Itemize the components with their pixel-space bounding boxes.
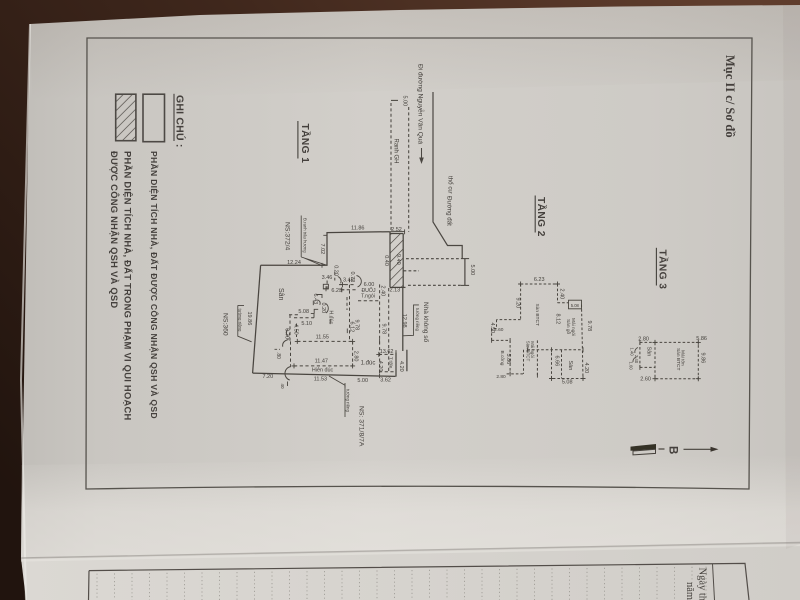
- svg-text:Hiên đúc: Hiên đúc: [312, 368, 334, 374]
- svg-text:12.98: 12.98: [401, 314, 407, 328]
- svg-text:7.20: 7.20: [262, 374, 273, 380]
- svg-text:Sàn BTCT: Sàn BTCT: [534, 304, 540, 326]
- svg-text:6.43: 6.43: [312, 294, 318, 305]
- svg-text:19.86: 19.86: [246, 312, 252, 326]
- svg-text:5.86: 5.86: [505, 354, 511, 365]
- svg-text:TẦNG 1: TẦNG 1: [299, 124, 312, 164]
- svg-text:Sàn BTCT: Sàn BTCT: [525, 341, 530, 362]
- svg-text:tường riêng: tường riêng: [346, 389, 351, 412]
- svg-text:11.86: 11.86: [351, 225, 364, 231]
- svg-text:Đường đất: Đường đất: [446, 196, 453, 226]
- svg-text:thổ cư: thổ cư: [447, 176, 454, 194]
- svg-text:Ngày th: Ngày th: [697, 568, 708, 600]
- svg-text:Đ.ranh trâu hương: Đ.ranh trâu hương: [302, 218, 307, 253]
- svg-text:GHI CHÚ :: GHI CHÚ :: [174, 95, 187, 148]
- svg-text:11.55: 11.55: [316, 335, 329, 341]
- svg-text:0.40: 0.40: [383, 255, 389, 266]
- svg-text:4.50: 4.50: [293, 324, 299, 335]
- svg-text:TẦNG 3: TẦNG 3: [657, 250, 670, 290]
- svg-text:0.72: 0.72: [349, 272, 355, 283]
- svg-text:5.08: 5.08: [298, 309, 309, 315]
- svg-text:Mái tôn: Mái tôn: [680, 350, 686, 366]
- svg-text:Mục II c/ Sơ đồ: Mục II c/ Sơ đồ: [723, 55, 737, 138]
- svg-text:4.20: 4.20: [377, 361, 383, 372]
- svg-text:5.00: 5.00: [402, 96, 408, 107]
- svg-text:2.40: 2.40: [379, 286, 385, 297]
- svg-text:Ranh GH: Ranh GH: [393, 139, 399, 164]
- svg-text:T.ngói: T.ngói: [361, 294, 375, 300]
- svg-text:5.10: 5.10: [301, 321, 312, 327]
- svg-text:tường riêng: tường riêng: [238, 309, 243, 332]
- svg-text:2.52: 2.52: [391, 227, 402, 233]
- svg-text:4.20: 4.20: [398, 361, 404, 372]
- svg-text:B: B: [667, 446, 679, 454]
- svg-text:3.46: 3.46: [322, 275, 333, 281]
- svg-text:5.00: 5.00: [357, 378, 368, 384]
- svg-text:40: 40: [280, 384, 285, 390]
- svg-text:2.13: 2.13: [390, 287, 401, 293]
- svg-text:6.66: 6.66: [554, 356, 560, 367]
- svg-text:6.23: 6.23: [331, 288, 342, 294]
- svg-text:6.12: 6.12: [349, 322, 355, 333]
- svg-text:9.78: 9.78: [380, 324, 386, 335]
- svg-text:11.53: 11.53: [314, 376, 327, 382]
- svg-text:H.đúc: H.đúc: [327, 311, 333, 325]
- svg-text:6.23: 6.23: [534, 277, 545, 283]
- svg-text:5.00: 5.00: [469, 265, 475, 276]
- svg-text:5.08: 5.08: [562, 380, 573, 386]
- svg-text:2.60: 2.60: [640, 377, 651, 383]
- svg-text:9.86: 9.86: [700, 353, 706, 364]
- svg-text:năm: năm: [684, 582, 695, 600]
- svg-text:0.70: 0.70: [283, 328, 289, 339]
- svg-text:NS:372/4: NS:372/4: [284, 222, 291, 251]
- svg-text:PHẦN DIỆN TÍCH NHÀ, ĐẤT ĐƯỢC: PHẦN DIỆN TÍCH NHÀ, ĐẤT ĐƯỢC CÔNG NHẬN Q…: [149, 151, 160, 419]
- svg-text:9.78: 9.78: [586, 321, 592, 332]
- svg-text:2.80: 2.80: [496, 374, 506, 380]
- svg-text:Sân: Sân: [277, 288, 284, 301]
- svg-text:Mái ngói: Mái ngói: [570, 318, 576, 336]
- svg-text:2.60: 2.60: [494, 327, 504, 333]
- svg-text:Nhà không số: Nhà không số: [422, 302, 431, 342]
- svg-text:1.60: 1.60: [629, 362, 634, 371]
- svg-text:2.80: 2.80: [353, 351, 359, 362]
- svg-text:0.20: 0.20: [333, 265, 339, 276]
- svg-text:7.02: 7.02: [319, 244, 325, 255]
- svg-text:Mái ngói: Mái ngói: [530, 341, 535, 358]
- svg-text:PHẦN DIỆN TÍCH NHÀ, ĐẤT TRONG: PHẦN DIỆN TÍCH NHÀ, ĐẤT TRONG PHẠM VI QU…: [122, 151, 133, 421]
- svg-text:tường riêng: tường riêng: [415, 308, 420, 331]
- svg-text:T.tôle: T.tôle: [387, 357, 393, 369]
- svg-text:Đi đường Nguyễn Văn Quá: Đi đường Nguyễn Văn Quá: [417, 64, 426, 145]
- svg-text:TẦNG 2: TẦNG 2: [535, 197, 548, 237]
- svg-text:NS: 371/8/7A: NS: 371/8/7A: [358, 406, 365, 447]
- svg-text:2.40: 2.40: [559, 289, 565, 300]
- svg-text:5.86: 5.86: [696, 336, 707, 342]
- svg-text:13.62: 13.62: [380, 349, 394, 355]
- svg-text:5.08: 5.08: [571, 303, 580, 308]
- svg-text:Sân: Sân: [567, 361, 573, 371]
- svg-text:4.20: 4.20: [583, 363, 589, 374]
- svg-text:8.12: 8.12: [555, 314, 561, 325]
- svg-text:3.62: 3.62: [380, 377, 391, 383]
- svg-text:ĐƯỢC CÔNG NHẬN QSH VÀ QSD: ĐƯỢC CÔNG NHẬN QSH VÀ QSD: [109, 151, 120, 308]
- svg-text:.80: .80: [275, 352, 281, 359]
- svg-text:9.20: 9.20: [515, 298, 521, 309]
- svg-text:11.47: 11.47: [315, 358, 328, 364]
- svg-text:12.24: 12.24: [287, 260, 301, 266]
- svg-text:Sân: Sân: [645, 347, 651, 357]
- svg-text:1.đúc: 1.đúc: [361, 360, 376, 366]
- svg-text:9.40: 9.40: [395, 254, 401, 265]
- svg-text:2.80: 2.80: [638, 336, 649, 342]
- svg-text:NS:360: NS:360: [222, 313, 229, 336]
- svg-text:0.20: 0.20: [320, 303, 326, 314]
- svg-text:B.công: B.công: [499, 351, 505, 366]
